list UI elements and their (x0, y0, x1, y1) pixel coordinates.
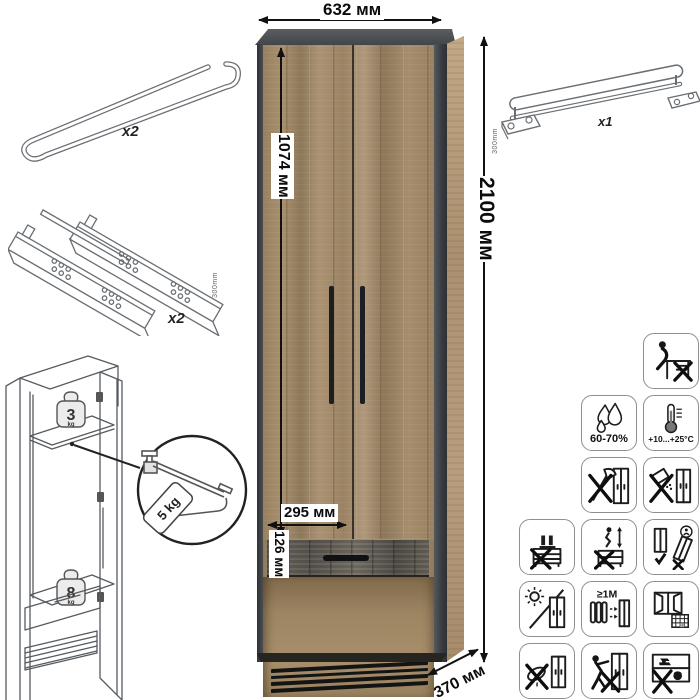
care-icon-temperature: +10...+25°C (643, 395, 699, 451)
no-axe-icon (586, 462, 632, 508)
no-dragging-icon (586, 648, 632, 694)
hanger-rod-qty: x2 (122, 123, 139, 140)
drawer-front (267, 540, 429, 577)
wardrobe-base (257, 653, 447, 662)
wardrobe-doors (263, 45, 434, 541)
drawer-slides-part (8, 196, 240, 336)
humidity-label: 60-70% (590, 434, 628, 445)
wardrobe-right-edge (434, 44, 447, 662)
svg-text:kg: kg (67, 600, 74, 606)
care-icon-ventilate-room: 21 (643, 581, 699, 637)
width-dimension-label: 632 мм (320, 0, 384, 20)
temperature-icon (651, 403, 691, 434)
svg-text:kg: kg (67, 422, 74, 428)
door-gap (352, 45, 354, 539)
inner-width-label: 295 мм (281, 504, 338, 522)
no-standing-icon (524, 524, 570, 570)
care-icon-no-sitting (643, 333, 699, 389)
height-dimension-arrow (483, 37, 485, 662)
inner-width-arrow (268, 524, 346, 526)
door-height-arrow (280, 48, 282, 536)
care-icon-no-sharp-impact (581, 457, 637, 513)
drawer-height-label: 126 мм (269, 530, 289, 578)
door-height-label: 1074 мм (271, 133, 294, 199)
care-icon-humidity: 60-70% (581, 395, 637, 451)
care-icon-no-direct-sunlight (519, 581, 575, 637)
right-door-handle (360, 286, 365, 404)
drawer-slides-length-label: 300mm (212, 272, 219, 298)
wardrobe-side-panel (446, 36, 464, 662)
svg-text:≥1M: ≥1M (597, 589, 618, 601)
left-door-handle (329, 286, 334, 404)
ventilate-room-icon: 21 (648, 586, 694, 632)
svg-text:21: 21 (680, 624, 684, 628)
care-icon-radiator-distance: ≥1M (581, 581, 637, 637)
drawer-slides-qty: x2 (168, 310, 185, 327)
radiator-distance-icon: ≥1M (586, 586, 632, 632)
keep-upright-icon (648, 524, 694, 570)
assembly-diagram-canvas: 632 мм 1074 мм 295 мм 126 мм 2100 мм 37 (0, 0, 700, 700)
wardrobe-top-panel (254, 29, 456, 45)
humidity-icon (589, 402, 629, 433)
no-sitting-icon (648, 338, 694, 384)
no-sunlight-icon (524, 586, 570, 632)
care-icon-no-wet-cleaning (519, 643, 575, 699)
height-dimension-label: 2100 мм (472, 176, 500, 262)
care-icon-no-dragging (581, 643, 637, 699)
open-niche (263, 577, 434, 697)
no-jumping-icon (586, 524, 632, 570)
pullout-rail-length-label: 300mm (492, 128, 499, 154)
care-icon-keep-upright (643, 519, 699, 575)
interior-line-drawing: 3 kg 5 kg 8 kg (0, 348, 252, 700)
pullout-rail-part (490, 62, 700, 174)
care-icon-grid: 60-70% +10...+25°C (519, 333, 699, 699)
depth-dimension-label: 370 мм (429, 660, 492, 700)
care-icon-no-jumping (581, 519, 637, 575)
hanger-rod-part (8, 52, 248, 172)
no-spill-icon (648, 462, 694, 508)
care-icon-no-heavy-load (643, 643, 699, 699)
shelf-load-weight: 3 kg (57, 392, 85, 428)
shoe-shelf-slats (271, 661, 428, 697)
no-heavy-load-icon (648, 648, 694, 694)
drawer-handle (323, 555, 369, 561)
no-wet-cleaning-icon (524, 648, 570, 694)
care-icon-no-standing (519, 519, 575, 575)
pullout-rail-qty: x1 (598, 114, 612, 129)
temperature-label: +10...+25°C (648, 435, 693, 444)
care-icon-no-spilling (643, 457, 699, 513)
